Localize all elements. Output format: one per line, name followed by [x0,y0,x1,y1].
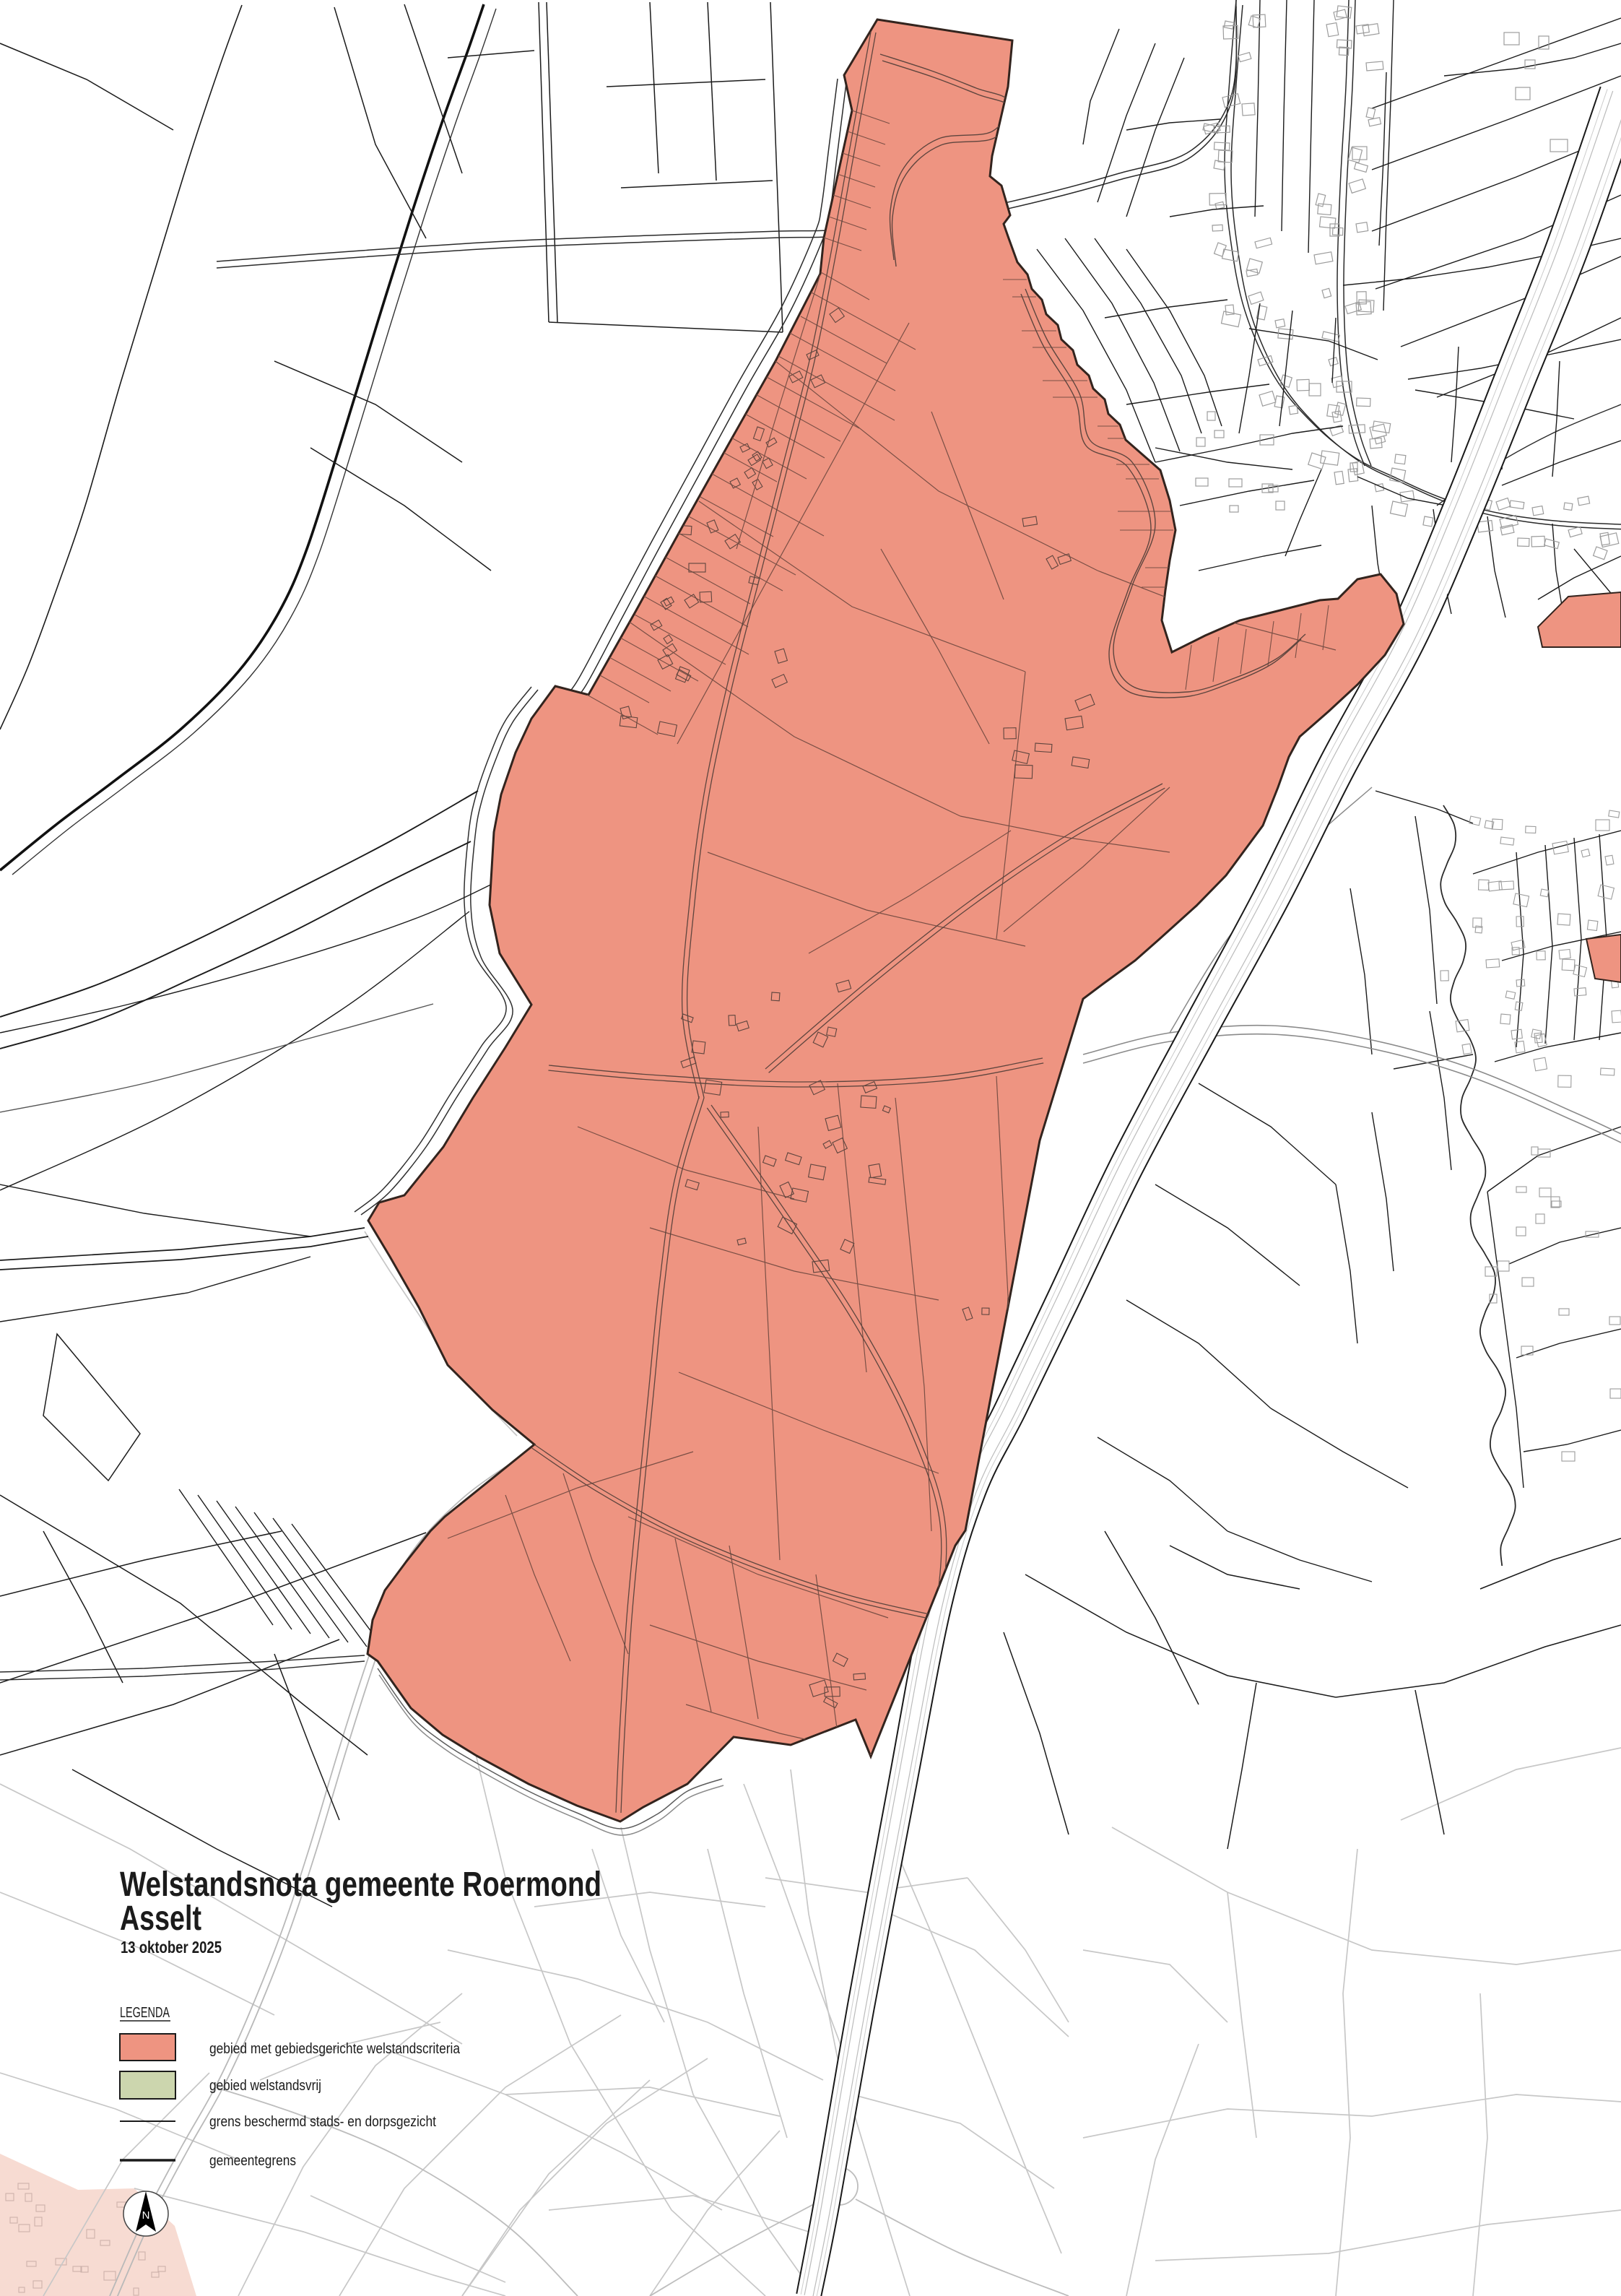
svg-text:gebied welstandsvrij: gebied welstandsvrij [209,2078,321,2094]
svg-text:Asselt: Asselt [120,1899,201,1938]
svg-text:Welstandsnota gemeente Roermon: Welstandsnota gemeente Roermond [120,1866,601,1904]
svg-text:gemeentegrens: gemeentegrens [209,2153,296,2169]
svg-text:LEGENDA: LEGENDA [120,2005,170,2021]
svg-text:grens beschermd stads- en dorp: grens beschermd stads- en dorpsgezicht [209,2114,436,2130]
svg-text:gebied met gebiedsgerichte wel: gebied met gebiedsgerichte welstandscrit… [209,2041,461,2057]
svg-text:N: N [142,2209,150,2222]
svg-text:13 oktober 2025: 13 oktober 2025 [121,1938,222,1957]
